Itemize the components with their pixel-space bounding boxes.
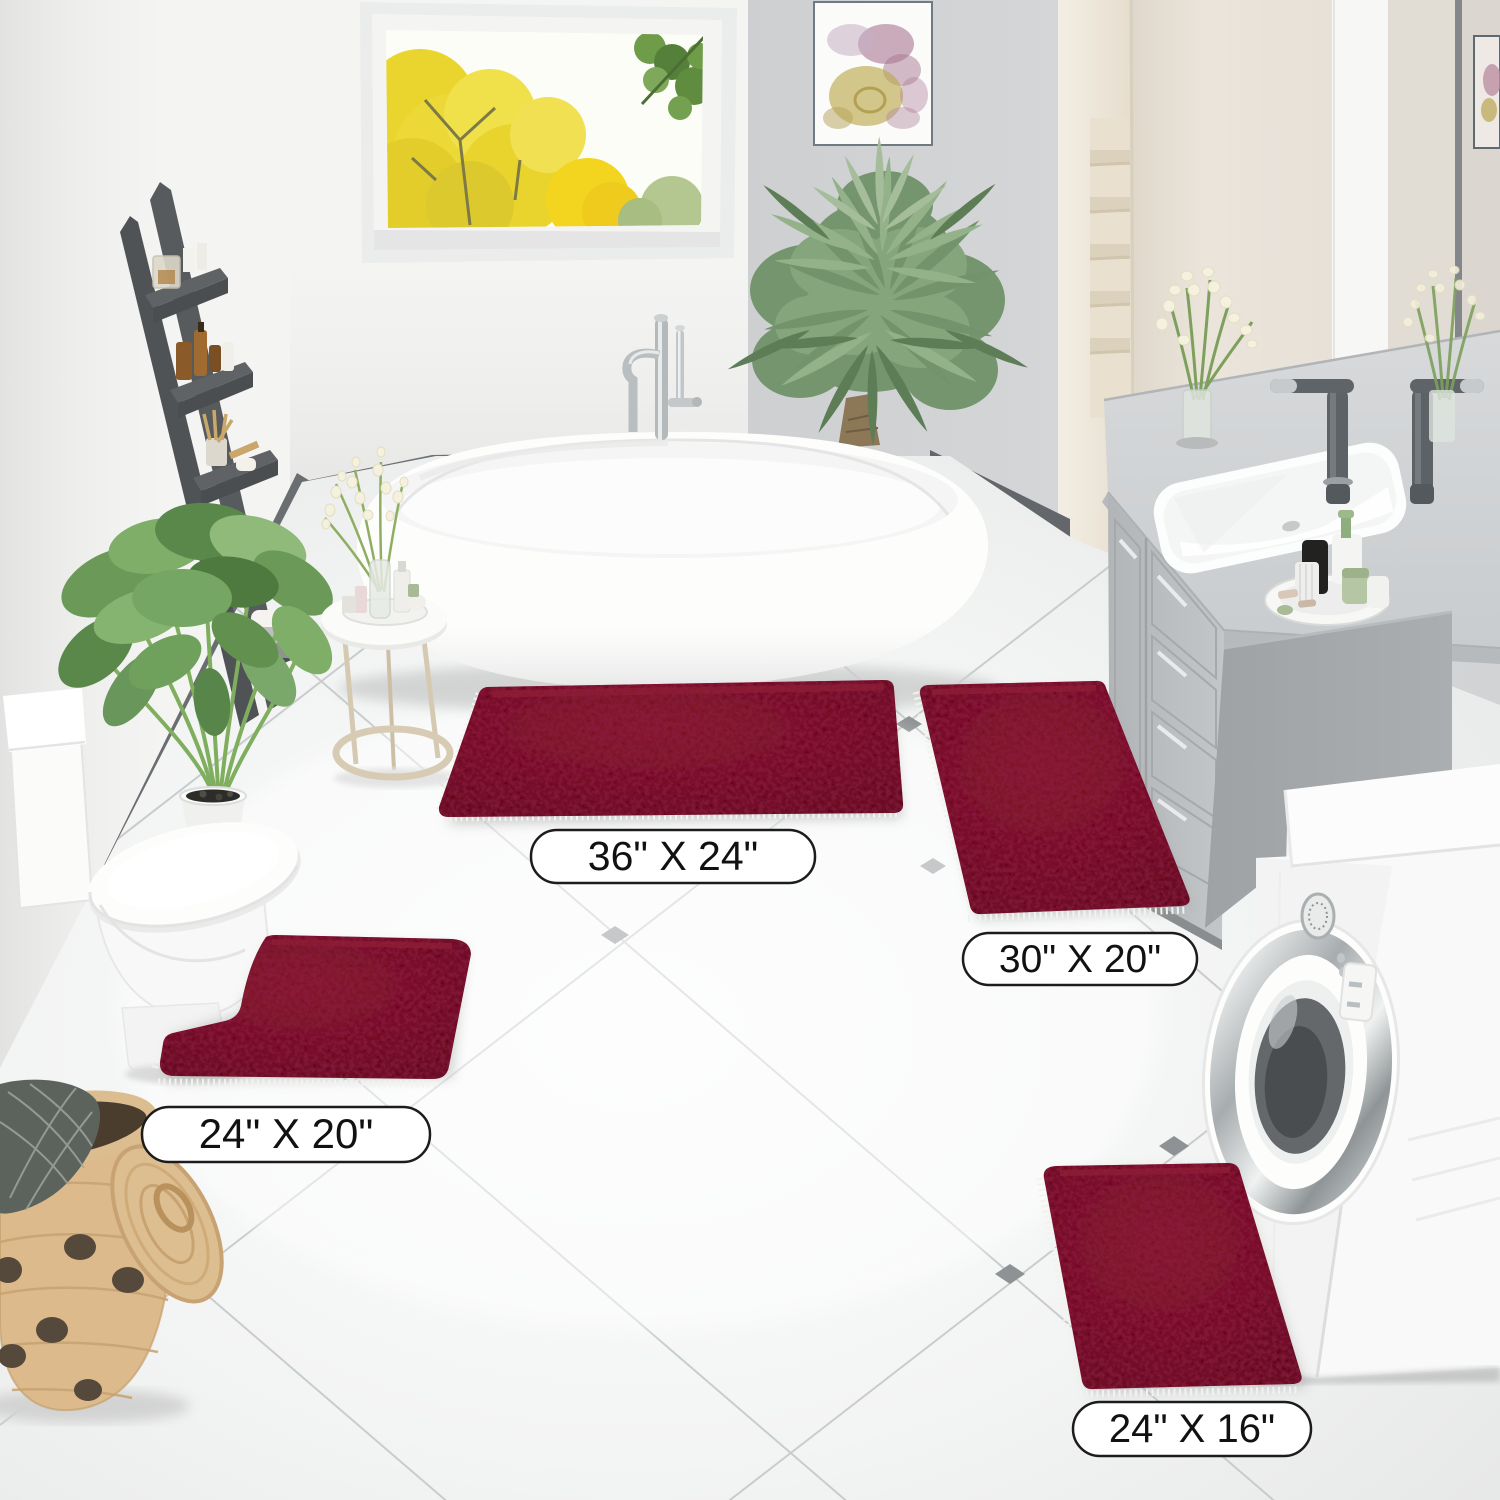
svg-text:30" X 20": 30" X 20" bbox=[999, 938, 1161, 981]
svg-text:24" X 20": 24" X 20" bbox=[199, 1110, 374, 1157]
svg-text:36" X 24": 36" X 24" bbox=[588, 833, 758, 879]
svg-text:24" X 16": 24" X 16" bbox=[1109, 1407, 1275, 1451]
